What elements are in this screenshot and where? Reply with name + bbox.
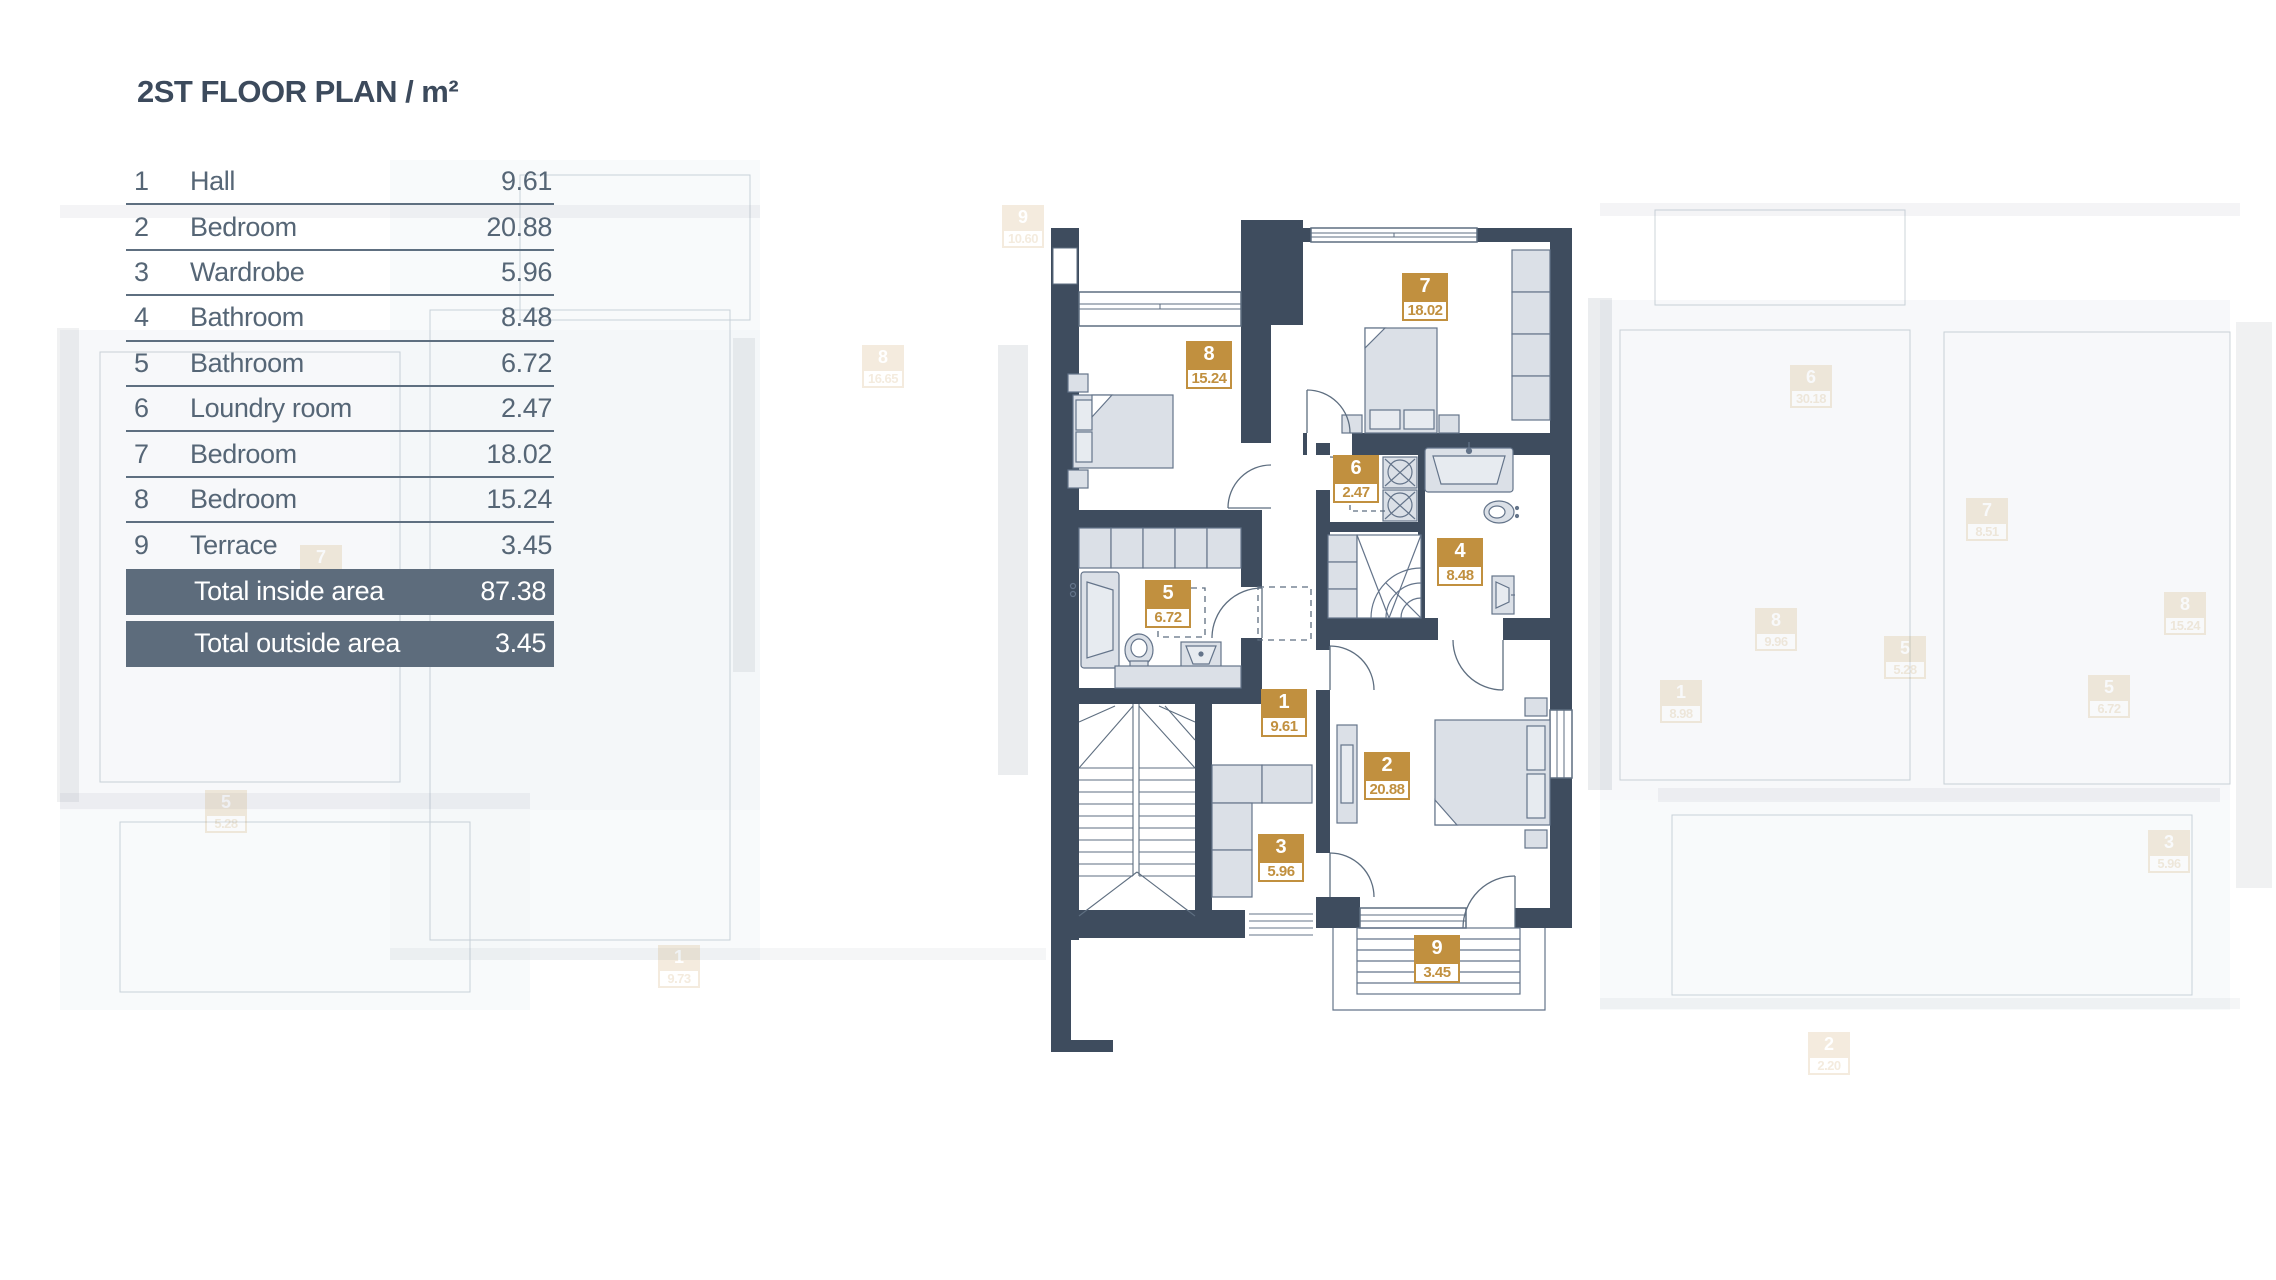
watermark-room-badge: 9 10.60 xyxy=(1002,205,1044,248)
legend-row-number: 1 xyxy=(126,166,190,197)
room-badge-area: 16.65 xyxy=(862,369,904,388)
room-badge-number: 3 xyxy=(1258,834,1304,861)
legend-total-value: 87.38 xyxy=(480,576,554,607)
room-badge-number: 9 xyxy=(1414,935,1460,962)
room-badge: 3 5.96 xyxy=(1258,834,1304,882)
legend-row: 7 Bedroom 18.02 xyxy=(126,432,554,477)
room-badge-area: 9.61 xyxy=(1261,716,1307,737)
watermark-room-badge: 2 2.20 xyxy=(1808,1032,1850,1075)
stairs xyxy=(1079,704,1195,916)
sink-bathroom4 xyxy=(1492,576,1515,614)
legend-row-number: 9 xyxy=(126,530,190,561)
room-badge-area: 18.02 xyxy=(1402,300,1448,321)
room-badge-number: 5 xyxy=(1145,580,1191,607)
legend-row-name: Bathroom xyxy=(190,302,434,333)
room-badge: 5 6.72 xyxy=(1145,580,1191,628)
room-badge-number: 7 xyxy=(1402,273,1448,300)
washer-dryer-laundry xyxy=(1383,457,1417,521)
room-badge-area: 15.24 xyxy=(1186,368,1232,389)
legend-row-number: 5 xyxy=(126,348,190,379)
watermark-room-badge: 8 9.96 xyxy=(1755,608,1797,651)
room-badge-number: 3 xyxy=(2148,830,2190,854)
room-badge-number: 8 xyxy=(862,345,904,369)
legend-row-name: Bedroom xyxy=(190,484,434,515)
legend-total-label: Total outside area xyxy=(126,628,495,659)
window-bedroom8-top xyxy=(1079,292,1241,326)
legend-row: 9 Terrace 3.45 xyxy=(126,523,554,568)
legend-row: 1 Hall 9.61 xyxy=(126,160,554,205)
room-badge: 2 20.88 xyxy=(1364,752,1410,800)
watermark-room-badge: 1 8.98 xyxy=(1660,680,1702,723)
left-wall-notch xyxy=(1053,248,1077,284)
legend-row: 8 Bedroom 15.24 xyxy=(126,478,554,523)
bathtub-bathroom4 xyxy=(1425,442,1513,492)
floor-plan-svg xyxy=(1045,220,1580,1068)
legend-row-number: 6 xyxy=(126,393,190,424)
room-badge-area: 5.96 xyxy=(2148,854,2190,873)
door-terrace xyxy=(1463,876,1515,928)
legend-row-area: 6.72 xyxy=(434,348,554,379)
room-badge: 4 8.48 xyxy=(1437,538,1483,586)
legend-row-area: 15.24 xyxy=(434,484,554,515)
room-badge-number: 1 xyxy=(1261,689,1307,716)
room-badge-area: 5.28 xyxy=(205,814,247,833)
room-badge-number: 8 xyxy=(1186,341,1232,368)
legend-row-area: 8.48 xyxy=(434,302,554,333)
dresser-bedroom2 xyxy=(1337,725,1357,823)
legend-row-area: 5.96 xyxy=(434,257,554,288)
door-bedroom8 xyxy=(1228,465,1271,508)
watermark-room-badge: 3 5.96 xyxy=(2148,830,2190,873)
room-badge-number: 9 xyxy=(1002,205,1044,229)
room-badge-area: 6.72 xyxy=(1145,607,1191,628)
legend-row-name: Loundry room xyxy=(190,393,434,424)
legend-row: 4 Bathroom 8.48 xyxy=(126,296,554,341)
legend-row-area: 20.88 xyxy=(434,212,554,243)
main-floor-plan: 1 9.61 2 20.88 3 5.96 4 8.48 5 6.72 6 2.… xyxy=(1045,220,1580,1068)
room-badge-number: 6 xyxy=(1790,365,1832,389)
legend-row-number: 3 xyxy=(126,257,190,288)
legend-row-area: 18.02 xyxy=(434,439,554,470)
room-badge-area: 15.24 xyxy=(2164,616,2206,635)
legend-row: 2 Bedroom 20.88 xyxy=(126,205,554,250)
bed-bedroom7 xyxy=(1342,328,1459,433)
watermark-room-badge: 1 9.73 xyxy=(658,945,700,988)
legend-row-name: Terrace xyxy=(190,530,434,561)
legend-row-name: Bedroom xyxy=(190,212,434,243)
room-badge-area: 5.28 xyxy=(1884,660,1926,679)
room-badge-area: 5.96 xyxy=(1258,861,1304,882)
legend-row-number: 2 xyxy=(126,212,190,243)
room-badge: 8 15.24 xyxy=(1186,341,1232,389)
dashed-box-hall xyxy=(1258,587,1311,640)
legend-row-area: 3.45 xyxy=(434,530,554,561)
room-badge-area: 9.96 xyxy=(1755,632,1797,651)
room-badge-number: 1 xyxy=(658,945,700,969)
room-badge-number: 2 xyxy=(1808,1032,1850,1056)
closet-row-bedroom8 xyxy=(1079,528,1241,568)
window-bedroom7-top xyxy=(1311,228,1477,242)
legend-row-number: 4 xyxy=(126,302,190,333)
bed-bedroom8 xyxy=(1068,374,1173,488)
threshold-lines xyxy=(1249,914,1313,935)
legend-row-name: Bedroom xyxy=(190,439,434,470)
closet-column-bedroom7 xyxy=(1512,250,1550,420)
window-bedroom2-bottom xyxy=(1360,908,1466,928)
room-badge-area: 10.60 xyxy=(1002,229,1044,248)
bed-bedroom2 xyxy=(1435,698,1550,848)
legend-total-value: 3.45 xyxy=(495,628,554,659)
door-bedroom2-upper xyxy=(1330,646,1374,690)
room-badge-number: 5 xyxy=(1884,636,1926,660)
page-title: 2ST FLOOR PLAN / m² xyxy=(137,74,458,110)
legend-row-area: 2.47 xyxy=(434,393,554,424)
legend-table: 1 Hall 9.61 2 Bedroom 20.88 3 Wardrobe 5… xyxy=(126,160,554,667)
legend-total-row: Total inside area 87.38 xyxy=(126,569,554,615)
room-badge-area: 20.88 xyxy=(1364,779,1410,800)
watermark-room-badge: 8 15.24 xyxy=(2164,592,2206,635)
legend-row: 5 Bathroom 6.72 xyxy=(126,342,554,387)
room-badge-number: 7 xyxy=(1966,498,2008,522)
room-badge-number: 8 xyxy=(2164,592,2206,616)
watermark-room-badge: 5 5.28 xyxy=(1884,636,1926,679)
legend-row-number: 8 xyxy=(126,484,190,515)
room-badge-number: 8 xyxy=(1755,608,1797,632)
watermark-room-badge: 5 6.72 xyxy=(2088,675,2130,718)
watermark-room-badge: 6 30.18 xyxy=(1790,365,1832,408)
room-badge-area: 3.45 xyxy=(1414,962,1460,983)
legend-row: 6 Loundry room 2.47 xyxy=(126,387,554,432)
washbasin-bathroom5 xyxy=(1181,642,1221,668)
room-badge-area: 8.51 xyxy=(1966,522,2008,541)
room-badge-area: 6.72 xyxy=(2088,699,2130,718)
room-badge-area: 8.48 xyxy=(1437,565,1483,586)
dashed-line-laundry xyxy=(1350,505,1385,511)
watermark-room-badge: 8 16.65 xyxy=(862,345,904,388)
room-badge-number: 1 xyxy=(1660,680,1702,704)
legend-row-area: 9.61 xyxy=(434,166,554,197)
watermark-room-badge: 7 8.51 xyxy=(1966,498,2008,541)
room-badge-area: 9.73 xyxy=(658,969,700,988)
room-badge-number: 5 xyxy=(205,790,247,814)
door-bathroom4 xyxy=(1453,640,1503,690)
room-badge-number: 2 xyxy=(1364,752,1410,779)
legend-row: 3 Wardrobe 5.96 xyxy=(126,251,554,296)
room-badge: 7 18.02 xyxy=(1402,273,1448,321)
legend-row-number: 7 xyxy=(126,439,190,470)
room-badge: 9 3.45 xyxy=(1414,935,1460,983)
legend-row-name: Bathroom xyxy=(190,348,434,379)
window-bedroom2-right xyxy=(1550,710,1572,778)
room-badge-area: 8.98 xyxy=(1660,704,1702,723)
legend-total-label: Total inside area xyxy=(126,576,480,607)
door-bedroom2-lower xyxy=(1330,853,1374,897)
shower-bathroom4 xyxy=(1328,535,1421,618)
legend-row-name: Hall xyxy=(190,166,434,197)
legend-row-name: Wardrobe xyxy=(190,257,434,288)
room-badge-area: 30.18 xyxy=(1790,389,1832,408)
door-bathroom5 xyxy=(1212,588,1262,638)
room-badge: 6 2.47 xyxy=(1333,455,1379,503)
legend-total-row: Total outside area 3.45 xyxy=(126,621,554,667)
room-badge: 1 9.61 xyxy=(1261,689,1307,737)
room-badge-area: 2.20 xyxy=(1808,1056,1850,1075)
toilet-bathroom5 xyxy=(1125,634,1153,668)
room-badge-area: 2.47 xyxy=(1333,482,1379,503)
watermark-room-badge: 5 5.28 xyxy=(205,790,247,833)
counter-bathroom5 xyxy=(1115,666,1241,688)
toilet-bathroom4 xyxy=(1484,501,1519,523)
legend-rows: 1 Hall 9.61 2 Bedroom 20.88 3 Wardrobe 5… xyxy=(126,160,554,569)
floor-plan-page: 2ST FLOOR PLAN / m² 1 Hall 9.61 2 Bedroo… xyxy=(0,0,2276,1280)
room-badge-number: 4 xyxy=(1437,538,1483,565)
room-badge-number: 6 xyxy=(1333,455,1379,482)
legend-totals: Total inside area 87.38 Total outside ar… xyxy=(126,569,554,667)
room-badge-number: 5 xyxy=(2088,675,2130,699)
